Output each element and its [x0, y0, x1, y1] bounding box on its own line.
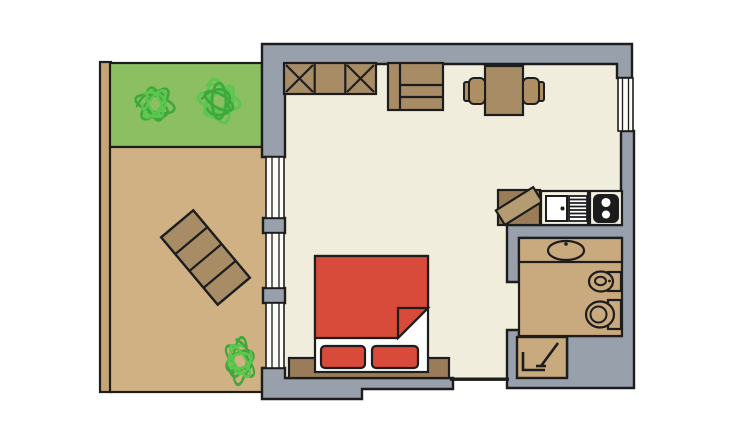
burner [601, 197, 612, 208]
burner [601, 210, 611, 220]
floor-plan-canvas [0, 0, 754, 435]
wardrobe [284, 63, 376, 94]
kitchenette [496, 187, 622, 225]
window-left-2 [266, 233, 284, 288]
shower [517, 337, 567, 378]
corner-unit [496, 187, 542, 225]
kitchen-sink [541, 191, 588, 225]
faucet-dot [561, 207, 565, 211]
bidet [589, 272, 621, 292]
floor-plan-page [0, 0, 754, 435]
chair-right [523, 78, 544, 104]
terrace-area [100, 62, 267, 392]
pillow-left [321, 346, 365, 368]
chair-left [464, 78, 485, 104]
dresser [388, 63, 443, 110]
toilet [586, 300, 621, 329]
stove [590, 191, 622, 225]
window-left-3 [266, 303, 284, 368]
faucet-dot [564, 242, 568, 246]
drainer-stripes [569, 196, 587, 221]
dining-table [485, 66, 523, 115]
threshold-line [450, 378, 509, 381]
window-right [618, 78, 633, 131]
washbasin-counter [519, 238, 622, 262]
pillow-right [372, 346, 418, 368]
wall-block-left-1 [263, 218, 285, 233]
window-left-1 [266, 157, 284, 218]
wall-block-left-2 [263, 288, 285, 303]
